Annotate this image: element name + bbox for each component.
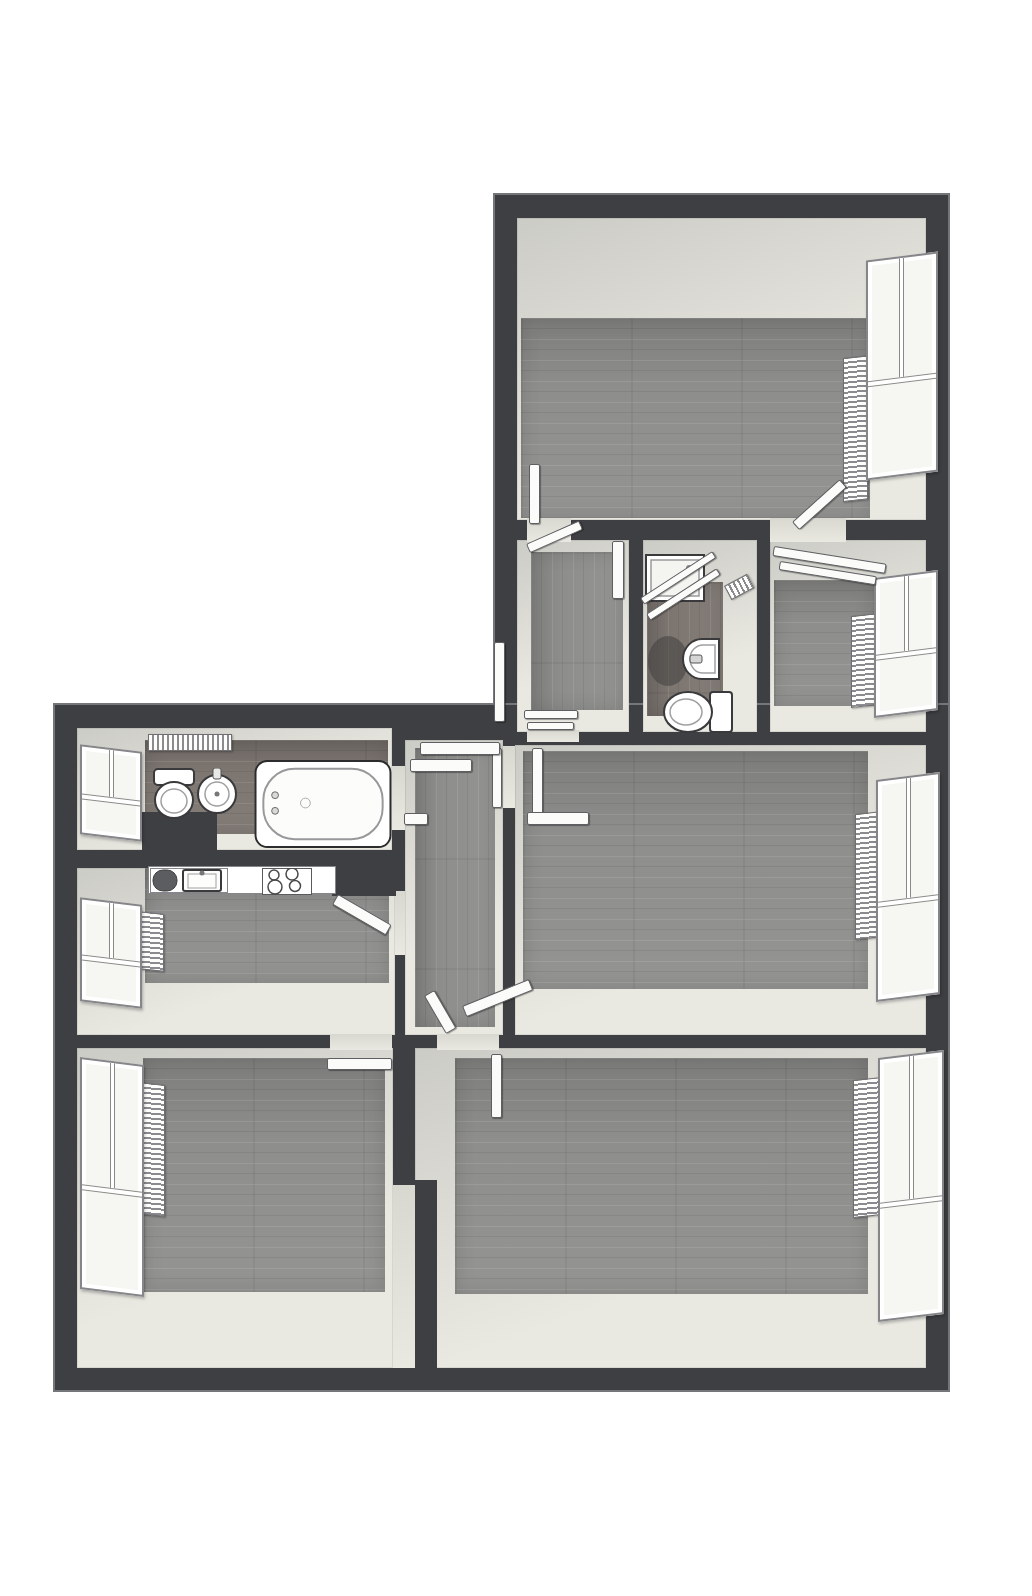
door-opening-bedroom-right	[437, 1034, 499, 1050]
entry-threshold-2	[527, 722, 574, 730]
window-living-room-mullion	[906, 778, 911, 899]
bedroom-left-floor	[143, 1058, 385, 1292]
window-bathroom-left-mullion	[109, 750, 114, 798]
window-bedroom-top-mullion	[899, 258, 904, 377]
window-kitchen-mullion	[109, 903, 114, 959]
radiator-bedroom-top	[843, 355, 868, 502]
hallway-shelf-2	[410, 759, 472, 772]
door-leaf-living-room-2	[527, 812, 589, 825]
living-room-floor	[523, 751, 868, 989]
cooktop	[262, 868, 312, 895]
bathtub	[254, 760, 392, 848]
door-leaf-bedroom-right	[491, 1054, 502, 1118]
hallway-ledge	[404, 813, 428, 825]
bedroom-right-floor	[455, 1058, 868, 1294]
toilet-bathroom-small	[662, 690, 734, 734]
towel-radiator-bathroom-left	[148, 734, 232, 751]
wall-stub-kitchen	[332, 860, 396, 896]
bedroom-top-floor	[521, 318, 870, 518]
door-opening-entry-hall	[527, 730, 579, 742]
door-opening-hall-kitchen	[395, 891, 405, 955]
toilet-bathroom-left	[151, 768, 197, 820]
entry-room-floor	[531, 552, 623, 710]
kitchen-sink	[150, 868, 228, 893]
door-opening-bedroom-left	[330, 1034, 392, 1050]
floor-plan	[0, 0, 1032, 1596]
window-room-top-right-mullion	[904, 576, 909, 651]
wash-basin-left	[196, 768, 238, 816]
hallway-shelf-1	[420, 742, 500, 755]
entry-threshold-1	[524, 710, 578, 719]
window-bedroom-right	[878, 1050, 944, 1322]
wall-jog-bedrooms	[415, 1180, 437, 1368]
window-bedroom-left-mullion	[110, 1063, 115, 1189]
window-bedroom-top	[866, 252, 938, 481]
window-bedroom-left	[80, 1057, 144, 1297]
window-room-top-right	[874, 570, 938, 718]
window-bedroom-right-mullion	[909, 1056, 914, 1200]
door-opening-hall-living	[503, 746, 515, 808]
door-leaf-hallway-right	[492, 748, 502, 808]
entry-door	[494, 642, 505, 722]
wash-basin-small	[682, 638, 720, 680]
window-living-room	[876, 772, 940, 1002]
door-leaf-living-room	[532, 748, 543, 818]
window-kitchen	[80, 897, 142, 1009]
door-leaf-bedroom-top-left	[529, 464, 540, 524]
hallway-floor	[415, 748, 495, 1027]
door-leaf-bedroom-left	[327, 1058, 392, 1070]
window-bathroom-left	[80, 744, 142, 842]
wall-recess-bedrooms	[393, 1185, 415, 1368]
closet-rail-entry-vertical	[612, 541, 624, 599]
radiator-bedroom-right	[853, 1077, 880, 1218]
